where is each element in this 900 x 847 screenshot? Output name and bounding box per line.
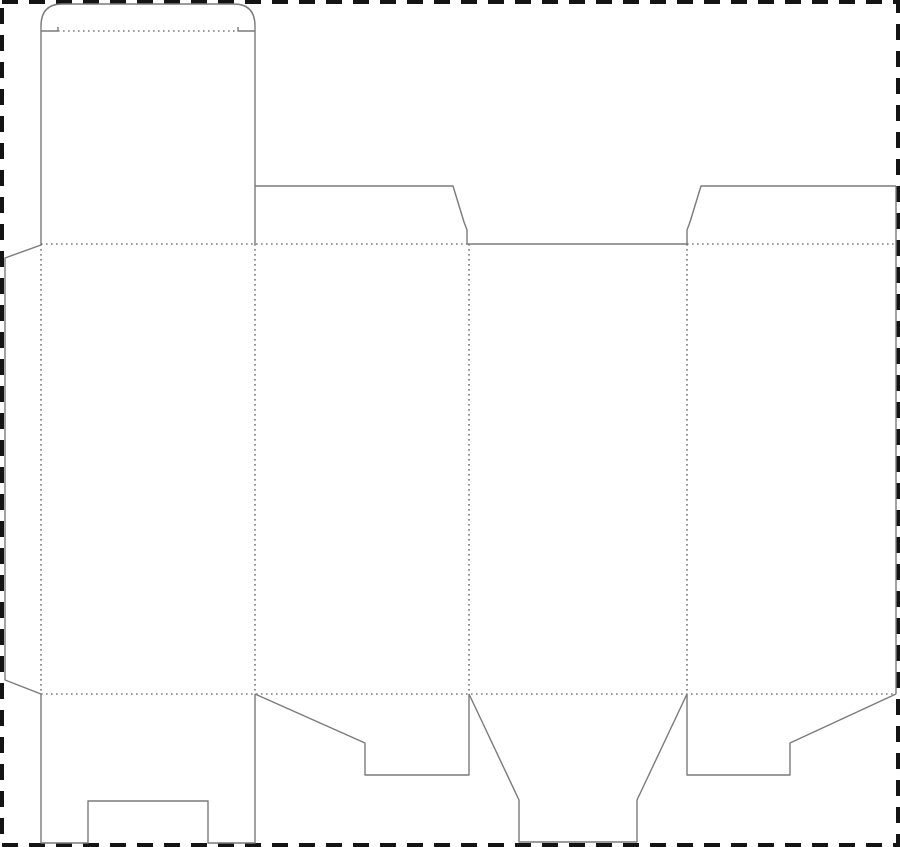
bottom-tongue-flap xyxy=(469,694,687,842)
bottom-hook-flap-right xyxy=(687,694,896,775)
dashed-trim-border xyxy=(2,2,898,845)
cut-lines-group xyxy=(5,4,896,843)
top-dust-flap-left xyxy=(255,186,467,244)
top-dust-flap-right xyxy=(687,186,896,244)
bottom-hook-flap-left xyxy=(255,694,469,775)
dieline-canvas xyxy=(0,0,900,847)
tuck-shoulder-right xyxy=(238,27,255,31)
tuck-shoulder-left xyxy=(41,27,58,31)
bottom-lock-flap xyxy=(41,694,255,843)
glue-flap-edge xyxy=(5,245,41,694)
fold-lines-group xyxy=(41,31,896,694)
dieline-page xyxy=(0,0,900,847)
tuck-flap-outline xyxy=(41,4,255,31)
